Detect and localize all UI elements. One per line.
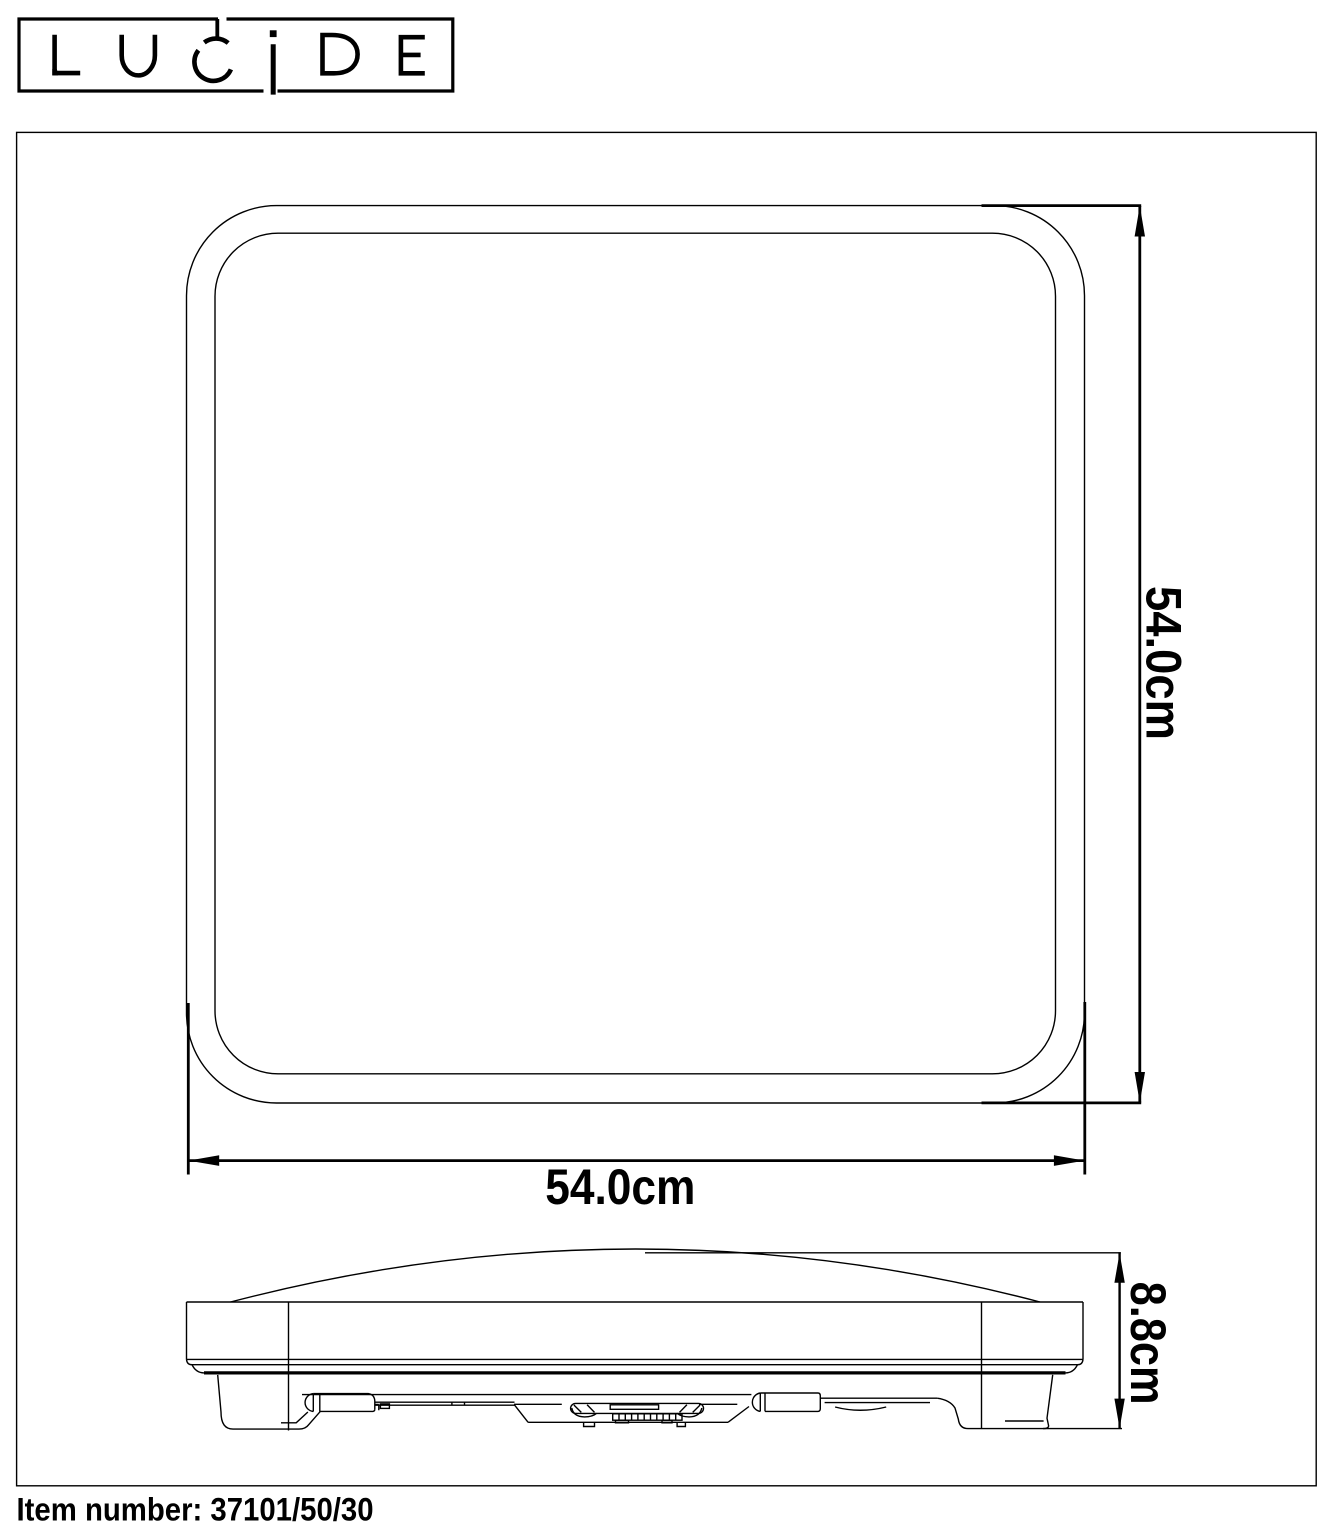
svg-text:54.0cm: 54.0cm — [545, 1160, 695, 1216]
svg-text:Item number: 37101/50/30: Item number: 37101/50/30 — [17, 1491, 374, 1527]
svg-text:54.0cm: 54.0cm — [1135, 586, 1190, 740]
svg-text:8.8cm: 8.8cm — [1121, 1282, 1177, 1405]
